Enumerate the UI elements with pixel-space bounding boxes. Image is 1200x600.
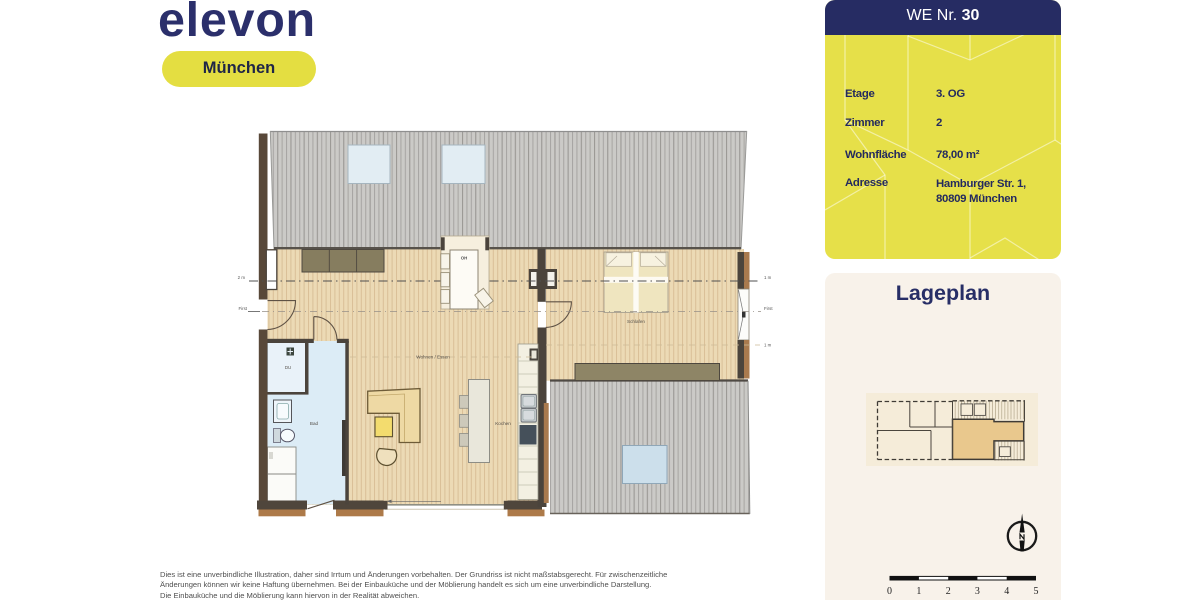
svg-text:3: 3 [975, 586, 980, 597]
svg-text:4: 4 [1004, 586, 1009, 597]
svg-text:0: 0 [887, 586, 892, 597]
svg-text:5: 5 [1034, 586, 1039, 597]
svg-text:1 m: 1 m [764, 275, 772, 280]
svg-text:First: First [764, 306, 773, 311]
svg-text:2 m: 2 m [238, 275, 246, 280]
svg-text:Kochen: Kochen [495, 421, 511, 426]
svg-text:Wohnen / Essen: Wohnen / Essen [416, 355, 450, 360]
svg-text:First: First [238, 306, 247, 311]
svg-text:Schlafen: Schlafen [627, 319, 645, 324]
svg-text:Bad: Bad [310, 421, 319, 426]
svg-text:1 m: 1 m [764, 343, 772, 348]
svg-text:DU: DU [285, 365, 291, 370]
svg-text:OH: OH [461, 256, 468, 261]
svg-text:1: 1 [916, 586, 921, 597]
svg-text:2: 2 [946, 586, 951, 597]
